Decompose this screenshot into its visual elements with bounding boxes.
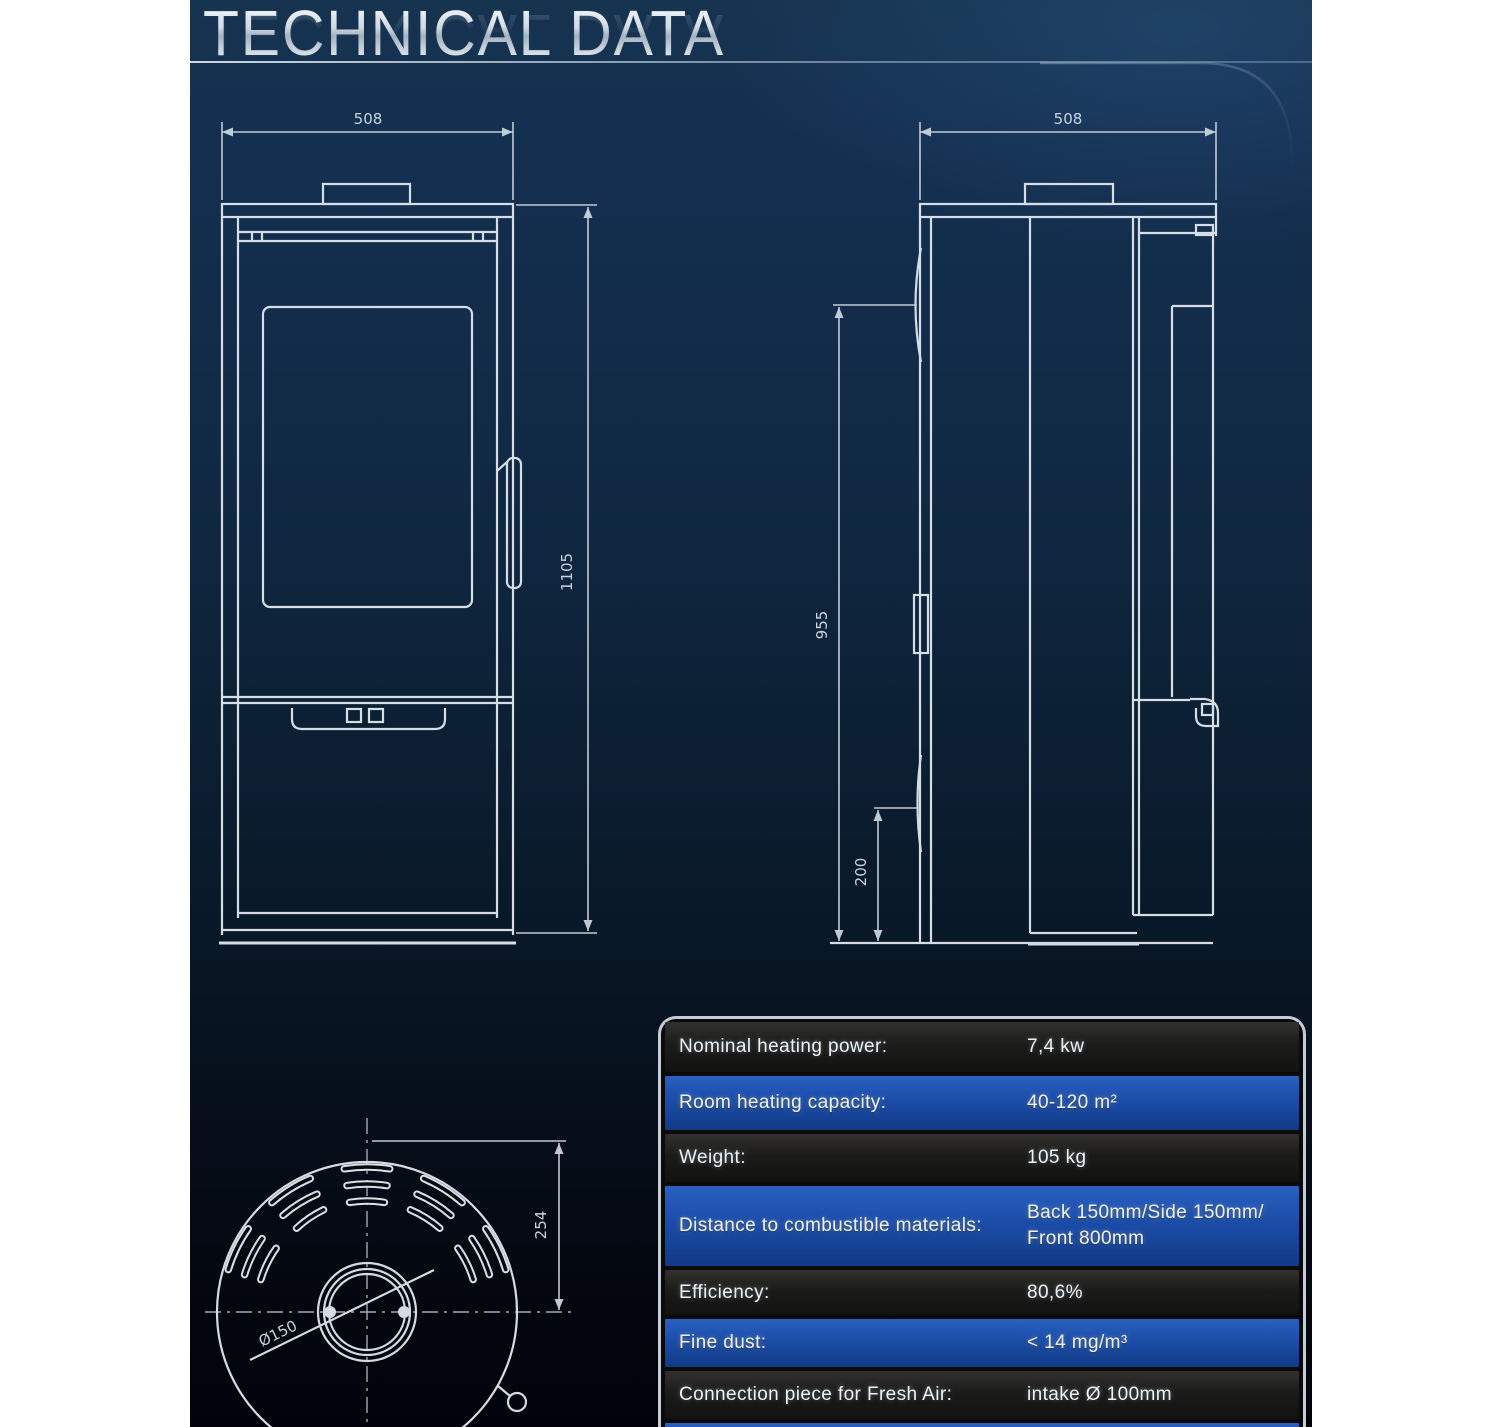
spec-value: 7,4 kw — [1027, 1034, 1299, 1060]
spec-label: Fine dust: — [665, 1330, 1027, 1356]
spec-value: Back 150mm/Side 150mm/ Front 800mm — [1027, 1200, 1299, 1252]
top-view — [205, 1118, 575, 1427]
spec-value: 105 kg — [1027, 1145, 1299, 1171]
side-width-label: 508 — [1054, 110, 1083, 128]
side-height-dimension — [833, 305, 917, 941]
spec-value: 80,6% — [1027, 1280, 1299, 1306]
front-view — [219, 122, 597, 943]
side-front-edge — [914, 217, 931, 943]
spec-label: Distance to combustible materials: — [665, 1213, 1027, 1239]
table-row: Connection piece for Fresh Air: intake Ø… — [665, 1371, 1299, 1419]
front-height-dimension — [516, 205, 597, 933]
front-height-label: 1105 — [558, 553, 576, 591]
side-handle — [1133, 699, 1218, 726]
table-row: Weight: 105 kg — [665, 1134, 1299, 1182]
side-top-plate — [920, 204, 1216, 217]
table-row-partial — [665, 1423, 1299, 1427]
spec-value-line1: Back 150mm/Side 150mm/ — [1027, 1200, 1293, 1226]
spec-label: Weight: — [665, 1145, 1027, 1171]
front-drawer-recess — [292, 708, 445, 729]
top-depth-label: 254 — [532, 1211, 550, 1240]
front-air-control-bar — [238, 232, 497, 241]
front-width-label: 508 — [354, 110, 383, 128]
side-plinth-dimension — [874, 808, 917, 941]
side-view — [830, 122, 1218, 944]
spec-table: Nominal heating power: 7,4 kw Room heati… — [658, 1016, 1306, 1427]
spec-value: < 14 mg/m³ — [1027, 1330, 1299, 1356]
table-row: Efficiency: 80,6% — [665, 1270, 1299, 1315]
spec-label: Room heating capacity: — [665, 1090, 1027, 1116]
side-base — [830, 915, 1213, 944]
side-glass-panel — [1139, 217, 1216, 915]
table-row: Nominal heating power: 7,4 kw — [665, 1022, 1299, 1072]
spec-value-line2: Front 800mm — [1027, 1226, 1293, 1252]
table-row: Distance to combustible materials: Back … — [665, 1186, 1299, 1266]
front-top-plate — [222, 204, 513, 217]
datasheet-page: TECHNICAL DATA TECHNICAL DATA — [0, 0, 1500, 1427]
table-row: Room heating capacity: 40-120 m² — [665, 1076, 1299, 1130]
front-door-glass — [263, 307, 472, 607]
top-air-damper — [498, 1386, 526, 1411]
front-flue-collar — [323, 184, 410, 204]
spec-value: intake Ø 100mm — [1027, 1382, 1299, 1408]
front-door-handle — [497, 458, 521, 588]
table-row: Fine dust: < 14 mg/m³ — [665, 1319, 1299, 1367]
side-width-dimension — [920, 122, 1216, 200]
spec-label: Connection piece for Fresh Air: — [665, 1382, 1027, 1408]
spec-value: 40-120 m² — [1027, 1090, 1299, 1116]
spec-label: Efficiency: — [665, 1280, 1027, 1306]
side-height-label: 955 — [813, 611, 831, 640]
spec-label: Nominal heating power: — [665, 1034, 1027, 1060]
front-base — [219, 913, 516, 943]
side-plinth-label: 200 — [852, 858, 870, 887]
side-flue-collar — [1025, 184, 1113, 204]
front-width-dimension — [222, 122, 513, 200]
